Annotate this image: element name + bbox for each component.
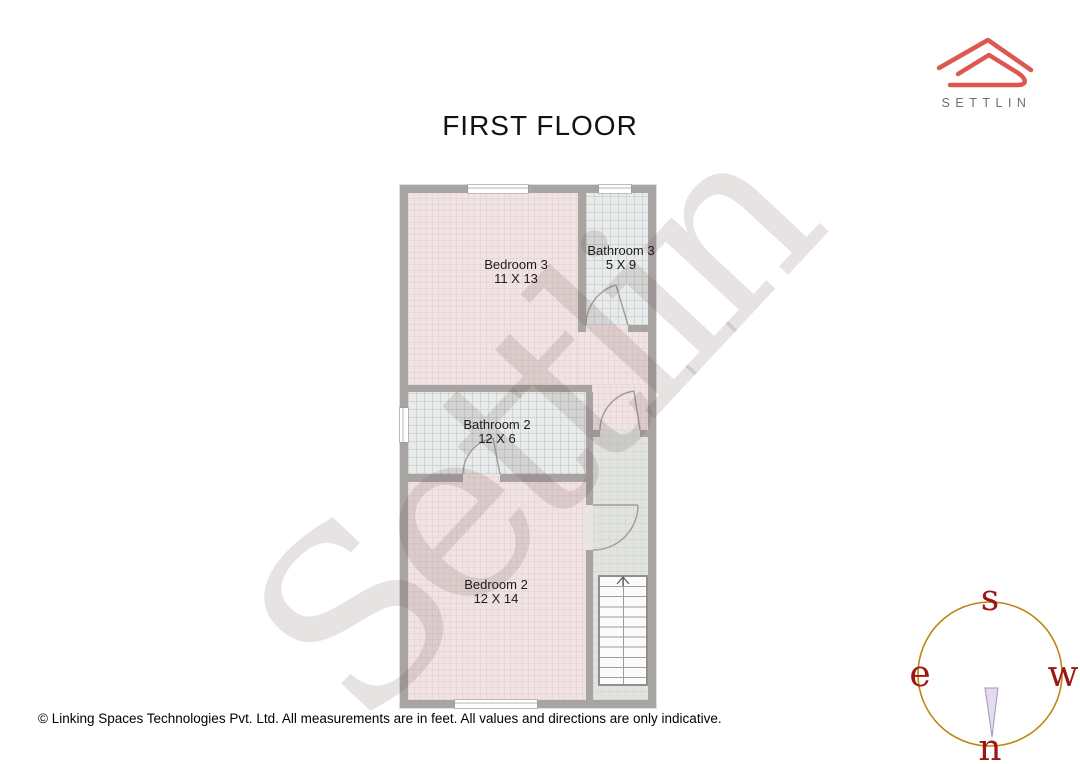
room-dims: 11 X 13	[416, 272, 616, 286]
stairs-up-arrow-icon	[617, 577, 629, 586]
room-label-bathroom-3: Bathroom 3 5 X 9	[571, 244, 671, 272]
window-bathroom3-north	[599, 185, 631, 193]
room-name: Bedroom 2	[416, 578, 576, 592]
room-name: Bathroom 3	[571, 244, 671, 258]
room-dims: 12 X 14	[416, 592, 576, 606]
floor-plan-page: FIRST FLOOR SETTLIN	[0, 0, 1080, 764]
door-arc-bathroom3	[586, 285, 628, 325]
room-label-bathroom-2: Bathroom 2 12 X 6	[417, 418, 577, 446]
door-arc-landing	[600, 391, 640, 430]
compass-letter-east: e	[909, 654, 930, 695]
door-arc-bedroom2	[593, 505, 638, 550]
window-bedroom2-south	[455, 700, 537, 708]
settlin-roof-logo-icon	[928, 30, 1040, 94]
room-dims: 5 X 9	[571, 258, 671, 272]
compass: s e w n	[908, 578, 1078, 764]
room-label-bedroom-2: Bedroom 2 12 X 14	[416, 578, 576, 606]
page-title: FIRST FLOOR	[400, 110, 680, 142]
compass-letter-north: n	[978, 728, 1001, 764]
compass-letter-south: s	[981, 578, 999, 619]
window-bedroom3-north	[468, 185, 528, 193]
copyright-note: © Linking Spaces Technologies Pvt. Ltd. …	[38, 711, 722, 726]
room-name: Bathroom 2	[417, 418, 577, 432]
room-dims: 12 X 6	[417, 432, 577, 446]
compass-letter-west: w	[1048, 654, 1078, 695]
brand-wordmark: SETTLIN	[928, 96, 1040, 110]
window-bathroom2-west	[400, 408, 408, 442]
